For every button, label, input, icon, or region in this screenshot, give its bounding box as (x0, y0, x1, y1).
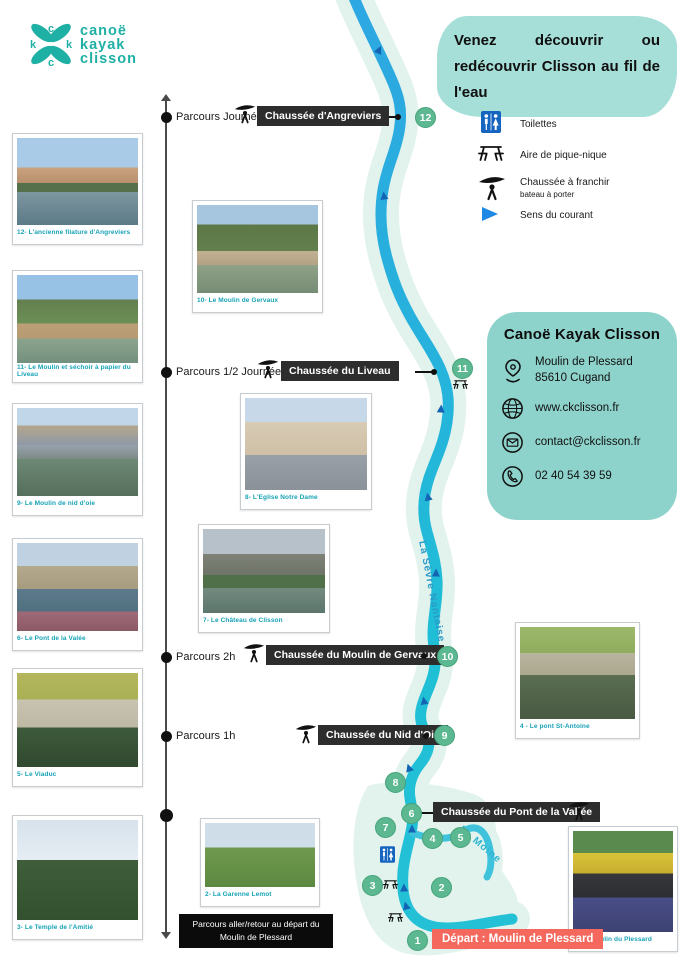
photo-chateau-clisson (203, 529, 325, 613)
legend-portage-label: Chaussée à franchir (520, 177, 610, 188)
photo-moulin-plessard (573, 831, 673, 932)
logo-mark: c k k c (26, 20, 76, 68)
photo-card-3: 3- Le Temple de l'Amitié (12, 815, 143, 940)
picnic-icon (453, 378, 468, 390)
globe-icon (501, 397, 527, 420)
connector-dot (395, 114, 401, 120)
logo-word-clisson: clisson (80, 53, 137, 67)
timeline-dot-demi-journee (161, 367, 172, 378)
photo-caption: 10- Le Moulin de Gervaux (197, 293, 318, 308)
contact-address-line2: 85610 Cugand (535, 372, 610, 384)
chaussee-gervaux-label: Chaussée du Moulin de Gervaux (266, 645, 444, 665)
svg-text:c: c (48, 57, 54, 68)
point-10: 10 (437, 646, 458, 667)
photo-card-5: 5- Le Viaduc (12, 668, 143, 787)
contact-website: www.ckclisson.fr (535, 401, 619, 417)
timeline-arrow-bottom (161, 932, 171, 939)
contact-email-row: contact@ckclisson.fr (501, 431, 663, 454)
portage-icon (477, 173, 507, 201)
photo-card-10: 10- Le Moulin de Gervaux (192, 200, 323, 313)
contact-email: contact@ckclisson.fr (535, 435, 641, 451)
poster-canvas: La Sèvre Nantaise La Moine c k k c canoë… (0, 0, 680, 962)
contact-address-row: Moulin de Plessard 85610 Cugand (501, 355, 663, 386)
point-5: 5 (450, 827, 471, 848)
photo-caption: 11- Le Moulin et séchoir à papier du Liv… (17, 363, 138, 378)
photo-garenne-lemot (205, 823, 315, 887)
portage-icon (294, 722, 318, 749)
portage-icon (233, 102, 257, 129)
photo-card-2: 2- La Garenne Lemot (200, 818, 320, 907)
return-route-note: Parcours aller/retour au départ du Mouli… (179, 914, 333, 948)
photo-caption: 7- Le Château de Clisson (203, 613, 325, 628)
connector-dot (421, 653, 427, 659)
point-7: 7 (375, 817, 396, 838)
toilets-icon (380, 846, 395, 863)
photo-card-4: 4 - Le pont St-Antoine (515, 622, 640, 739)
legend-toilets-label: Toilettes (520, 119, 557, 130)
point-8: 8 (385, 772, 406, 793)
photo-temple-amitie (17, 820, 138, 920)
point-2: 2 (431, 877, 452, 898)
contact-address-line1: Moulin de Plessard (535, 356, 633, 368)
photo-card-6: 6- Le Pont de la Valée (12, 538, 143, 651)
timeline-dot-journee (161, 112, 172, 123)
picnic-icon (478, 143, 504, 162)
point-6: 6 (401, 803, 422, 824)
photo-card-9: 9- Le Moulin de nid d'oie (12, 403, 143, 516)
headline-text: Venez découvrir ou redécouvrir Clisson a… (454, 28, 660, 105)
contact-title: Canoë Kayak Clisson (501, 326, 663, 343)
chaussee-liveau-label: Chaussée du Liveau (281, 361, 399, 381)
svg-text:c: c (48, 23, 54, 35)
connector-dot (431, 369, 437, 375)
photo-moulin-gervaux (197, 205, 318, 293)
photo-caption: 9- Le Moulin de nid d'oie (17, 496, 138, 511)
photo-moulin-nid-doie (17, 408, 138, 496)
svg-text:k: k (30, 39, 37, 51)
parcours-1h-label: Parcours 1h (176, 730, 235, 742)
photo-viaduc (17, 673, 138, 767)
contact-card: Canoë Kayak Clisson Moulin de Plessard 8… (487, 312, 677, 520)
timeline-dot-1h (161, 731, 172, 742)
point-1: 1 (407, 930, 428, 951)
photo-caption: 2- La Garenne Lemot (205, 887, 315, 902)
photo-caption: 5- Le Viaduc (17, 767, 138, 782)
photo-filature-angreviers (17, 138, 138, 225)
chaussee-angreviers-label: Chaussée d'Angreviers (257, 106, 389, 126)
current-direction-icon (481, 206, 499, 222)
photo-card-11: 11- Le Moulin et séchoir à papier du Liv… (12, 270, 143, 383)
photo-caption: 12- L'ancienne filature d'Angreviers (17, 225, 138, 240)
photo-caption: 6- Le Pont de la Valée (17, 631, 138, 646)
headline-blob: Venez découvrir ou redécouvrir Clisson a… (437, 16, 677, 117)
portage-icon (256, 357, 280, 384)
contact-phone-row: 02 40 54 39 59 (501, 465, 663, 488)
connector-dot (423, 733, 429, 739)
location-pin-icon (501, 358, 527, 384)
envelope-icon (501, 431, 527, 454)
picnic-icon (383, 878, 398, 890)
timeline-dot-2h (161, 652, 172, 663)
point-11: 11 (452, 358, 473, 379)
photo-card-12: 12- L'ancienne filature d'Angreviers (12, 133, 143, 245)
timeline-dot-vallee (160, 809, 173, 822)
point-3: 3 (362, 875, 383, 896)
point-9: 9 (434, 725, 455, 746)
photo-caption: 3- Le Temple de l'Amitié (17, 920, 138, 935)
parcours-2h-label: Parcours 2h (176, 651, 235, 663)
phone-icon (501, 465, 527, 488)
photo-caption: 4 - Le pont St-Antoine (520, 719, 635, 734)
photo-pont-st-antoine (520, 627, 635, 719)
svg-text:k: k (66, 39, 73, 51)
photo-moulin-liveau (17, 275, 138, 363)
picnic-icon (388, 911, 403, 923)
contact-address: Moulin de Plessard 85610 Cugand (535, 355, 633, 386)
portage-icon (567, 799, 591, 826)
photo-caption: 8- L'Eglise Notre Dame (245, 490, 367, 505)
legend-picnic-label: Aire de pique-nique (520, 150, 607, 161)
contact-phone: 02 40 54 39 59 (535, 469, 612, 485)
photo-card-8: 8- L'Eglise Notre Dame (240, 393, 372, 510)
legend-current-label: Sens du courant (520, 210, 593, 221)
toilets-icon (481, 111, 501, 133)
legend-portage-sublabel: bateau à porter (520, 190, 574, 199)
photo-eglise-notre-dame (245, 398, 367, 490)
photo-pont-valee (17, 543, 138, 631)
photo-card-7: 7- Le Château de Clisson (198, 524, 330, 633)
portage-icon (242, 641, 266, 668)
depart-label: Départ : Moulin de Plessard (432, 929, 603, 949)
point-12: 12 (415, 107, 436, 128)
point-4: 4 (422, 828, 443, 849)
logo-wordmark: canoë kayak clisson (80, 25, 137, 66)
contact-website-row: www.ckclisson.fr (501, 397, 663, 420)
